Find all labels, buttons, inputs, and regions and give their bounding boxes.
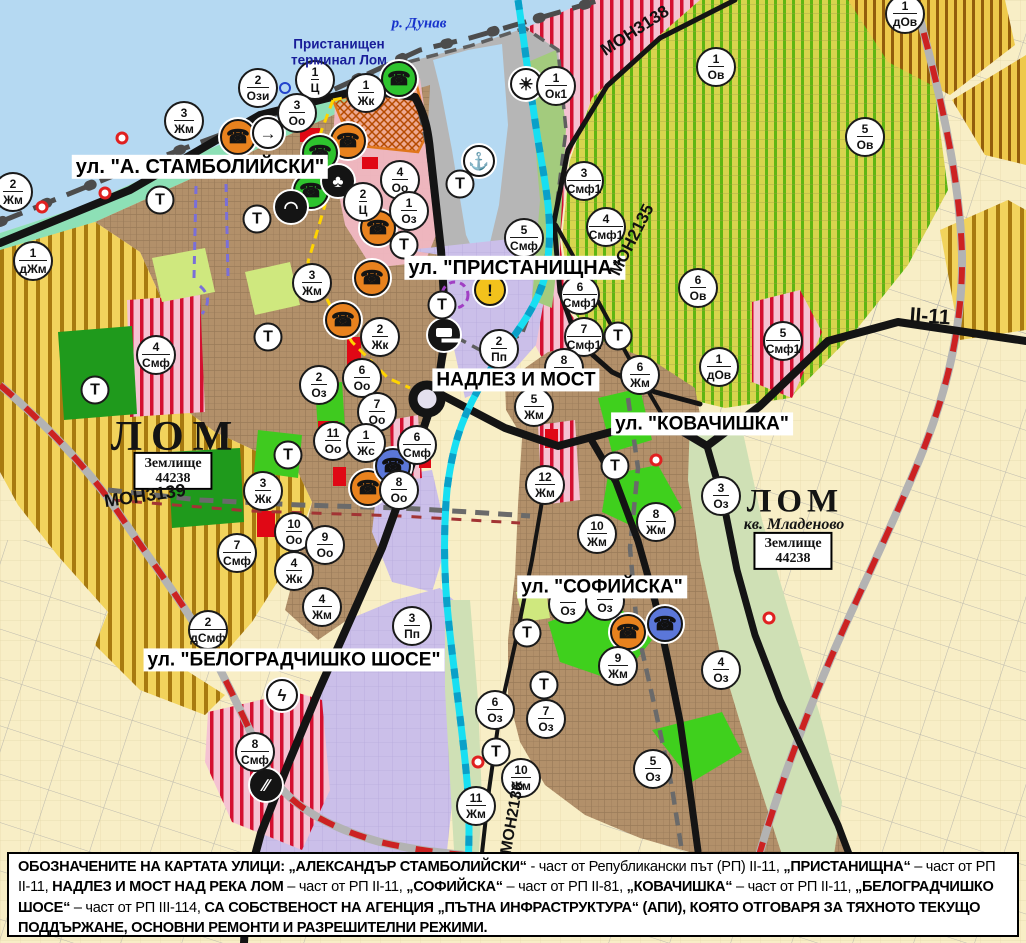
zone-marker-2-Ц: 2Ц xyxy=(343,182,383,222)
zone-marker-number: 5 xyxy=(862,123,869,136)
zone-marker-code: Оо xyxy=(289,112,306,127)
legend-segment: – част от РП II-11, xyxy=(284,879,407,895)
zone-marker-number: 1 xyxy=(553,72,560,85)
poi-dot xyxy=(116,132,129,145)
zone-marker-11-Жм: 11Жм xyxy=(456,786,496,826)
t-zone-marker: Т xyxy=(254,323,283,352)
zone-marker-number: 7 xyxy=(543,705,550,718)
zone-marker-number: 11 xyxy=(327,427,340,440)
street-label: ул. "КОВАЧИШКА" xyxy=(611,412,793,435)
lightning-icon: ϟ xyxy=(266,679,298,711)
zone-marker-number: 3 xyxy=(718,482,725,495)
zone-marker-number: 5 xyxy=(780,327,787,340)
zone-marker-code: Оо xyxy=(325,440,342,455)
zone-marker-code: Оз xyxy=(713,495,728,510)
zone-marker-number: 1 xyxy=(713,53,720,66)
danube-river-label: р. Дунав xyxy=(392,16,447,33)
zone-marker-code: Оо xyxy=(317,544,334,559)
zone-marker-number: 5 xyxy=(521,224,528,237)
zone-marker-code: Жм xyxy=(302,282,322,297)
zone-marker-code: Оз xyxy=(487,709,502,724)
phone-icon: ☎ xyxy=(610,614,646,650)
zone-marker-number: 5 xyxy=(650,755,657,768)
zone-marker-number: 2 xyxy=(377,323,384,336)
street-label: ул. "А. СТАМБОЛИЙСКИ" xyxy=(72,155,328,179)
zone-marker-code: Жк xyxy=(372,336,389,351)
zone-marker-4-Смф: 4Смф xyxy=(136,335,176,375)
zone-marker-number: 3 xyxy=(294,99,301,112)
zone-marker-number: 2 xyxy=(10,178,17,191)
zone-marker-1-Жк: 1Жк xyxy=(346,73,386,113)
street-label: НАДЛЕЗ И МОСТ xyxy=(432,368,599,391)
zone-marker-number: 10 xyxy=(590,520,603,533)
zone-marker-9-Жм: 9Жм xyxy=(598,646,638,686)
t-zone-marker: Т xyxy=(530,671,559,700)
zone-marker-code: Жм xyxy=(587,533,607,548)
zone-marker-3-Жк: 3Жк xyxy=(243,471,283,511)
zone-marker-number: 8 xyxy=(653,508,660,521)
zone-marker-number: 8 xyxy=(396,476,403,489)
t-zone-marker: Т xyxy=(513,619,542,648)
zone-marker-code: Смф1 xyxy=(567,180,602,195)
poi-ring-dot xyxy=(279,82,291,94)
phone-icon: ☎ xyxy=(325,302,361,338)
zone-marker-code: Смф1 xyxy=(589,226,624,241)
legend-segment: „СОФИЙСКА“ xyxy=(406,879,503,895)
landplot-label: Землище xyxy=(764,536,821,551)
road-number-label: II-11 xyxy=(909,304,951,331)
zone-marker-code: Оо xyxy=(354,377,371,392)
poi-dot xyxy=(36,201,49,214)
zone-marker-5-Оз: 5Оз xyxy=(633,749,673,789)
zone-marker-code: Смф xyxy=(223,552,251,567)
zone-marker-number: 9 xyxy=(322,531,329,544)
zone-marker-number: 1 xyxy=(902,0,909,13)
zone-marker-5-Жм: 5Жм xyxy=(514,387,554,427)
zone-marker-code: Оз xyxy=(597,599,612,614)
zone-marker-number: 11 xyxy=(470,792,483,805)
zone-marker-2-Пп: 2Пп xyxy=(479,329,519,369)
zone-marker-4-Жм: 4Жм xyxy=(302,587,342,627)
zone-marker-3-Жм: 3Жм xyxy=(164,101,204,141)
zone-marker-code: Ов xyxy=(708,66,725,81)
t-zone-marker: Т xyxy=(601,452,630,481)
zone-marker-code: Оз xyxy=(645,768,660,783)
poi-dot xyxy=(650,454,663,467)
poi-dot xyxy=(99,187,112,200)
zone-marker-number: 10 xyxy=(514,764,527,777)
road-number-label: МОН3139 xyxy=(103,480,187,512)
zone-marker-number: 3 xyxy=(409,612,416,625)
landplot-box: Землище44238 xyxy=(753,532,832,570)
zone-marker-code: Ов xyxy=(690,287,707,302)
zone-marker-7-Оз: 7Оз xyxy=(526,699,566,739)
legend-segment: ОБОЗНАЧЕНИТЕ НА КАРТАТА УЛИЦИ: „АЛЕКСАНД… xyxy=(18,859,527,875)
zone-marker-code: Ов xyxy=(857,136,874,151)
zone-marker-2-Жк: 2Жк xyxy=(360,317,400,357)
zone-marker-3-Пп: 3Пп xyxy=(392,606,432,646)
zone-marker-1-дОв: 1дОв xyxy=(885,0,925,34)
road-number-label: МОН2136 xyxy=(498,781,528,856)
zone-marker-code: Смф1 xyxy=(567,336,602,351)
zone-marker-code: Жк xyxy=(286,570,303,585)
zone-marker-code: Пп xyxy=(404,625,420,640)
zone-marker-number: 2 xyxy=(496,335,503,348)
zone-marker-code: Жм xyxy=(630,374,650,389)
city-label-lom-mladenovo: ЛОМ xyxy=(747,484,843,521)
zone-marker-1-Жс: 1Жс xyxy=(346,423,386,463)
truck-icon xyxy=(428,319,460,351)
zone-marker-number: 7 xyxy=(234,539,241,552)
poi-dot xyxy=(763,612,776,625)
street-label: ул. "БЕЛОГРАДЧИШКО ШОСЕ" xyxy=(144,648,445,671)
street-label: ул. "ПРИСТАНИЩНА" xyxy=(404,256,625,280)
zone-marker-code: Смф1 xyxy=(766,340,801,355)
zone-marker-6-Смф1: 6Смф1 xyxy=(560,275,600,315)
legend-segment: – част от РП II-11, xyxy=(732,879,855,895)
legend-box: ОБОЗНАЧЕНИТЕ НА КАРТАТА УЛИЦИ: „АЛЕКСАНД… xyxy=(7,852,1019,937)
zone-marker-number: 6 xyxy=(414,431,421,444)
zoning-map-canvas: ☎☎☎☎☎☎☎☎☎☎☎☎♣→◠⚓☀!ϟ∕∕ТТТТТТТТТТТТТ2Жм1дЖ… xyxy=(0,0,1026,943)
phone-icon: ☎ xyxy=(647,606,683,642)
zone-marker-code: Ок1 xyxy=(545,85,567,100)
zone-marker-6-Ов: 6Ов xyxy=(678,268,718,308)
landplot-label: Землище xyxy=(144,456,201,471)
zone-marker-6-Оз: 6Оз xyxy=(475,690,515,730)
zone-marker-9-Оо: 9Оо xyxy=(305,525,345,565)
zone-marker-8-Смф: 8Смф xyxy=(235,732,275,772)
zone-marker-code: Смф xyxy=(241,751,269,766)
zone-marker-code: Жм xyxy=(312,606,332,621)
zone-marker-1-Ок1: 1Ок1 xyxy=(536,66,576,106)
truck-glyph xyxy=(436,328,452,337)
zone-marker-number: 6 xyxy=(577,281,584,294)
zone-marker-code: Ц xyxy=(311,79,320,94)
zone-marker-code: Оо xyxy=(286,531,303,546)
zone-marker-6-Смф: 6Смф xyxy=(397,425,437,465)
legend-text: ОБОЗНАЧЕНИТЕ НА КАРТАТА УЛИЦИ: „АЛЕКСАНД… xyxy=(18,857,1008,939)
zone-marker-code: Смф xyxy=(510,237,538,252)
zone-marker-code: Жк xyxy=(358,92,375,107)
legend-segment: „ПРИСТАНИЩНА“ xyxy=(783,859,910,875)
railcross-icon: ∕∕ xyxy=(250,769,282,801)
zone-marker-5-Смф1: 5Смф1 xyxy=(763,321,803,361)
zone-marker-1-Ов: 1Ов xyxy=(696,47,736,87)
zone-marker-number: 8 xyxy=(252,738,259,751)
zone-marker-code: Жм xyxy=(3,191,23,206)
zone-marker-code: Жк xyxy=(255,490,272,505)
zone-marker-code: Оз xyxy=(538,718,553,733)
legend-segment: „КОВАЧИШКА“ xyxy=(627,879,733,895)
zone-marker-code: Смф xyxy=(142,354,170,369)
zone-marker-number: 6 xyxy=(492,696,499,709)
markers-overlay: ☎☎☎☎☎☎☎☎☎☎☎☎♣→◠⚓☀!ϟ∕∕ТТТТТТТТТТТТТ2Жм1дЖ… xyxy=(0,0,1026,943)
zone-marker-number: 1 xyxy=(406,197,413,210)
zone-marker-3-Оз: 3Оз xyxy=(701,476,741,516)
zone-marker-number: 8 xyxy=(561,354,568,367)
zone-marker-code: Жм xyxy=(466,805,486,820)
zone-marker-number: 3 xyxy=(181,107,188,120)
zone-marker-number: 7 xyxy=(581,323,588,336)
zone-marker-1-Оз: 1Оз xyxy=(389,191,429,231)
t-zone-marker: Т xyxy=(604,322,633,351)
zone-marker-number: 1 xyxy=(363,429,370,442)
zone-marker-number: 7 xyxy=(374,398,381,411)
zone-marker-5-Ов: 5Ов xyxy=(845,117,885,157)
zone-marker-code: Оо xyxy=(391,489,408,504)
zone-marker-code: Ц xyxy=(359,201,368,216)
legend-segment: – част от РП III-114, xyxy=(70,900,204,916)
zone-marker-number: 1 xyxy=(312,66,319,79)
zone-marker-number: 4 xyxy=(397,166,404,179)
legend-segment: НАДЛЕЗ И МОСТ НАД РЕКА ЛОМ xyxy=(52,879,283,895)
zone-marker-7-Смф: 7Смф xyxy=(217,533,257,573)
zone-marker-number: 1 xyxy=(30,247,37,260)
zone-marker-12-Жм: 12Жм xyxy=(525,465,565,505)
zone-marker-2-Оз: 2Оз xyxy=(299,365,339,405)
zone-marker-1-дОв: 1дОв xyxy=(699,347,739,387)
zone-marker-number: 6 xyxy=(695,274,702,287)
zone-marker-code: дОв xyxy=(707,366,731,381)
zone-marker-code: дЖм xyxy=(19,260,46,275)
legend-segment: – част от РП II-81, xyxy=(503,879,627,895)
zone-marker-2-Ози: 2Ози xyxy=(238,68,278,108)
zone-marker-number: 1 xyxy=(716,353,723,366)
zone-marker-8-Жм: 8Жм xyxy=(636,502,676,542)
t-zone-marker: Т xyxy=(482,738,511,767)
zone-marker-code: Пп xyxy=(491,348,507,363)
zone-marker-code: дОв xyxy=(893,13,917,28)
zone-marker-number: 2 xyxy=(255,74,262,87)
zone-marker-10-Жм: 10Жм xyxy=(577,514,617,554)
legend-segment: - част от Републикански път (РП) II-11, xyxy=(527,859,784,875)
t-zone-marker: Т xyxy=(81,376,110,405)
t-zone-marker: Т xyxy=(274,441,303,470)
phone-icon: ☎ xyxy=(354,260,390,296)
phone-icon: ☎ xyxy=(220,119,256,155)
zone-marker-3-Оо: 3Оо xyxy=(277,93,317,133)
zone-marker-code: Смф1 xyxy=(563,294,598,309)
zone-marker-code: Жм xyxy=(535,484,555,499)
zone-marker-code: Оз xyxy=(713,669,728,684)
zone-marker-number: 2 xyxy=(360,188,367,201)
zone-marker-3-Смф1: 3Смф1 xyxy=(564,161,604,201)
zone-marker-code: Жс xyxy=(357,442,375,457)
zone-marker-code: дСмф xyxy=(190,629,226,644)
zone-marker-number: 6 xyxy=(359,364,366,377)
zone-marker-number: 2 xyxy=(316,371,323,384)
zone-marker-3-Жм: 3Жм xyxy=(292,263,332,303)
t-zone-marker: Т xyxy=(428,291,457,320)
zone-marker-number: 3 xyxy=(260,477,267,490)
zone-marker-code: Смф xyxy=(403,444,431,459)
zone-marker-number: 4 xyxy=(603,213,610,226)
zone-marker-number: 2 xyxy=(205,616,212,629)
zone-marker-1-дЖм: 1дЖм xyxy=(13,241,53,281)
zone-marker-6-Жм: 6Жм xyxy=(620,355,660,395)
zone-marker-2-дСмф: 2дСмф xyxy=(188,610,228,650)
zone-marker-2-Жм: 2Жм xyxy=(0,172,33,212)
road-number-label: МОН3138 xyxy=(597,2,673,61)
zone-marker-number: 10 xyxy=(287,518,300,531)
zone-marker-code: Ози xyxy=(247,87,270,102)
zone-marker-number: 1 xyxy=(363,79,370,92)
zone-marker-code: Оз xyxy=(311,384,326,399)
street-label: ул. "СОФИЙСКА" xyxy=(517,575,687,598)
zone-marker-code: Оз xyxy=(560,602,575,617)
zone-marker-code: Жм xyxy=(174,120,194,135)
zone-marker-code: Жм xyxy=(646,521,666,536)
zone-marker-number: 3 xyxy=(581,167,588,180)
zone-marker-number: 4 xyxy=(319,593,326,606)
zone-marker-4-Оз: 4Оз xyxy=(701,650,741,690)
t-zone-marker: Т xyxy=(146,186,175,215)
zone-marker-code: Жм xyxy=(608,665,628,680)
tunnel-icon: ◠ xyxy=(275,191,307,223)
t-zone-marker: Т xyxy=(446,170,475,199)
zone-marker-number: 4 xyxy=(153,341,160,354)
zone-marker-number: 4 xyxy=(291,557,298,570)
landplot-number: 44238 xyxy=(764,551,821,566)
zone-marker-number: 9 xyxy=(615,652,622,665)
zone-marker-number: 4 xyxy=(718,656,725,669)
zone-marker-number: 3 xyxy=(309,269,316,282)
zone-marker-code: Жм xyxy=(524,406,544,421)
zone-marker-number: 12 xyxy=(538,471,551,484)
zone-marker-8-Оо: 8Оо xyxy=(379,470,419,510)
zone-marker-number: 6 xyxy=(637,361,644,374)
zone-marker-4-Жк: 4Жк xyxy=(274,551,314,591)
port-terminal-label: Пристанищен терминал Лом xyxy=(291,36,387,67)
zone-marker-5-Смф: 5Смф xyxy=(504,218,544,258)
zone-marker-number: 5 xyxy=(531,393,538,406)
t-zone-marker: Т xyxy=(243,205,272,234)
zone-marker-code: Оз xyxy=(401,210,416,225)
